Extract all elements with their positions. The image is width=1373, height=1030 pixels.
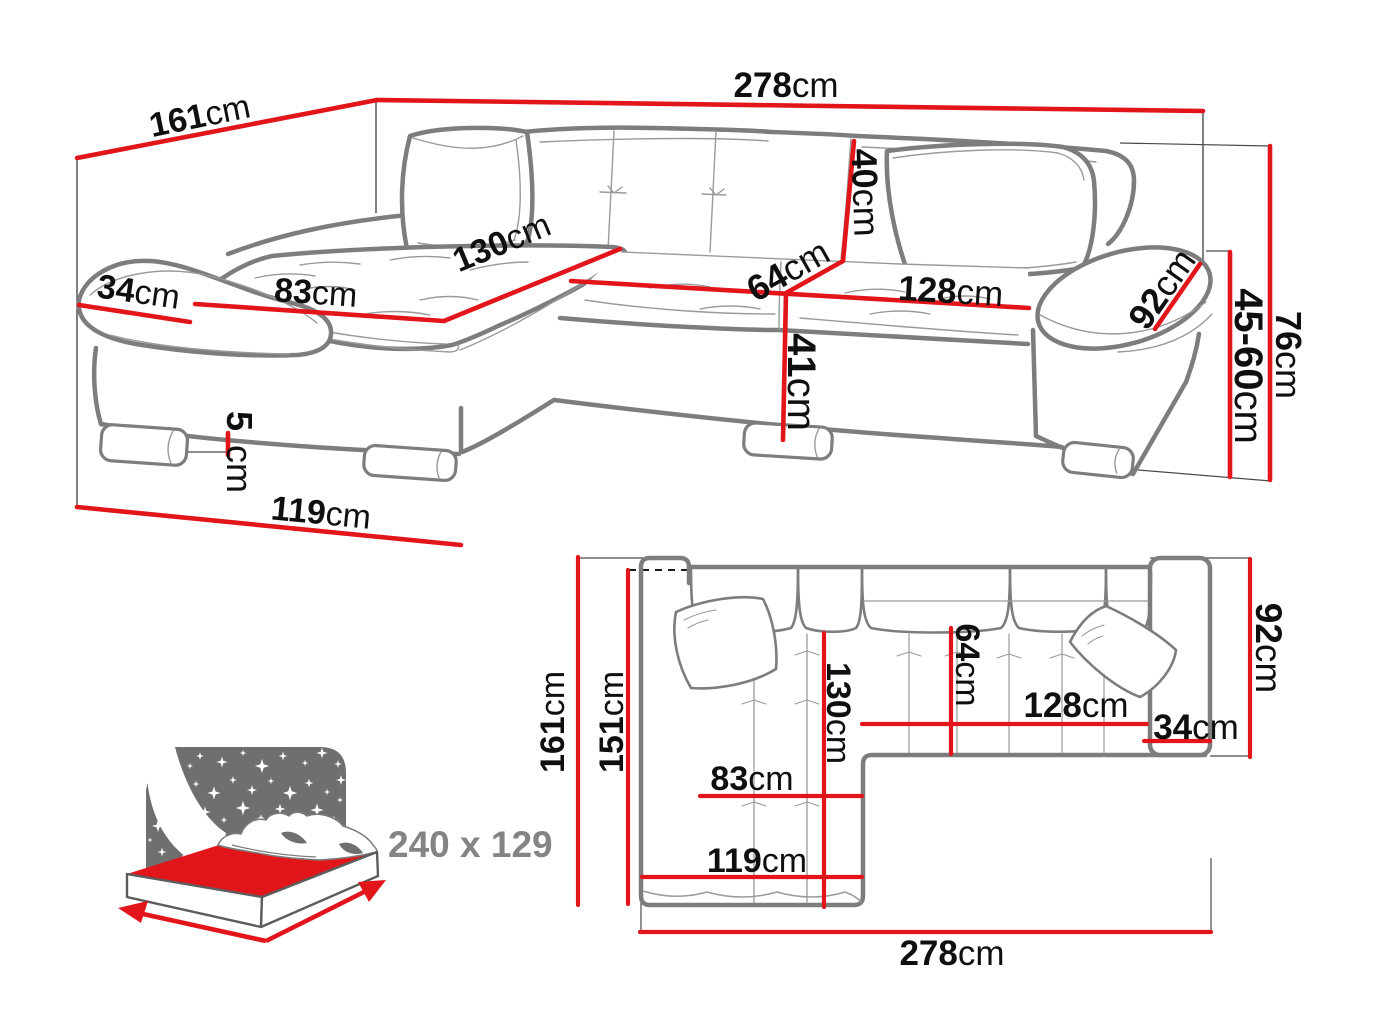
svg-text:40cm: 40cm <box>843 148 887 237</box>
svg-text:64cm: 64cm <box>948 623 986 706</box>
svg-text:161cm: 161cm <box>534 671 572 773</box>
svg-text:83cm: 83cm <box>710 760 793 798</box>
svg-text:76cm: 76cm <box>1268 311 1309 399</box>
svg-text:cm: cm <box>219 445 260 493</box>
svg-text:278cm: 278cm <box>733 66 838 105</box>
svg-text:119cm: 119cm <box>707 842 807 880</box>
svg-text:128cm: 128cm <box>1023 686 1128 725</box>
svg-text:45-60cm: 45-60cm <box>1226 288 1270 444</box>
svg-text:34cm: 34cm <box>1153 708 1239 747</box>
svg-text:41cm: 41cm <box>779 333 823 431</box>
svg-text:130cm: 130cm <box>819 662 857 764</box>
svg-text:83cm: 83cm <box>273 271 359 315</box>
svg-text:5: 5 <box>219 411 260 431</box>
svg-text:151cm: 151cm <box>593 671 631 773</box>
svg-text:92cm: 92cm <box>1248 603 1289 693</box>
svg-text:128cm: 128cm <box>897 269 1004 314</box>
svg-text:278cm: 278cm <box>899 934 1004 973</box>
svg-text:240 x 129: 240 x 129 <box>388 824 553 865</box>
